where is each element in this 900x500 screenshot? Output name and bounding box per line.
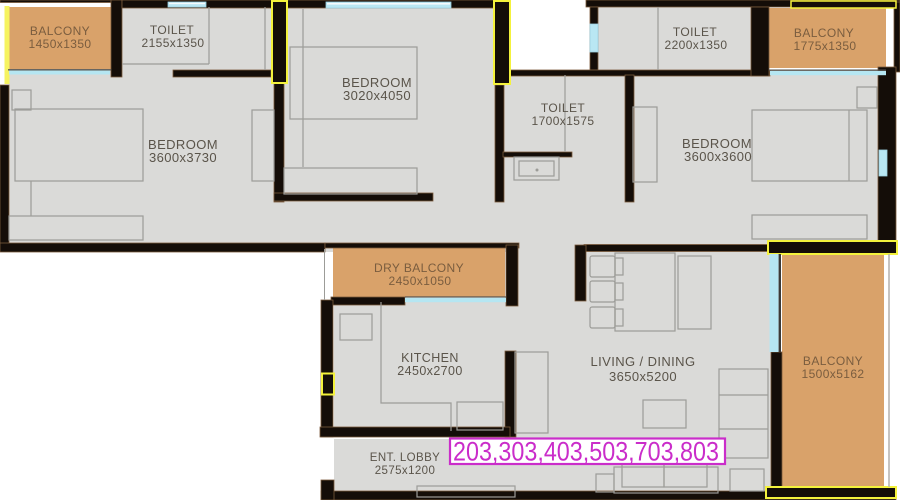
svg-text:3020x4050: 3020x4050 [343,88,411,103]
svg-text:DRY BALCONY: DRY BALCONY [374,261,464,275]
svg-text:203,303,403,503,703,803: 203,303,403,503,703,803 [453,437,719,467]
svg-text:ENT. LOBBY: ENT. LOBBY [370,452,440,464]
svg-text:1500x5162: 1500x5162 [802,367,865,381]
svg-text:TOILET: TOILET [541,101,585,115]
svg-text:3600x3600: 3600x3600 [684,149,752,164]
svg-text:3600x3730: 3600x3730 [149,150,217,165]
svg-text:BALCONY: BALCONY [30,24,90,38]
svg-text:2450x1050: 2450x1050 [389,274,452,288]
svg-text:KITCHEN: KITCHEN [401,351,459,365]
svg-text:2575x1200: 2575x1200 [375,465,436,477]
svg-text:3650x5200: 3650x5200 [609,369,677,384]
svg-text:BALCONY: BALCONY [803,354,863,368]
svg-text:LIVING / DINING: LIVING / DINING [591,354,696,369]
svg-text:2200x1350: 2200x1350 [665,38,728,52]
svg-text:2155x1350: 2155x1350 [142,36,205,50]
svg-text:2450x2700: 2450x2700 [397,364,462,378]
svg-text:1700x1575: 1700x1575 [532,114,595,128]
svg-text:TOILET: TOILET [150,23,194,37]
svg-text:1775x1350: 1775x1350 [794,39,857,53]
svg-text:TOILET: TOILET [673,25,717,39]
svg-text:1450x1350: 1450x1350 [29,37,92,51]
svg-text:BALCONY: BALCONY [794,26,854,40]
